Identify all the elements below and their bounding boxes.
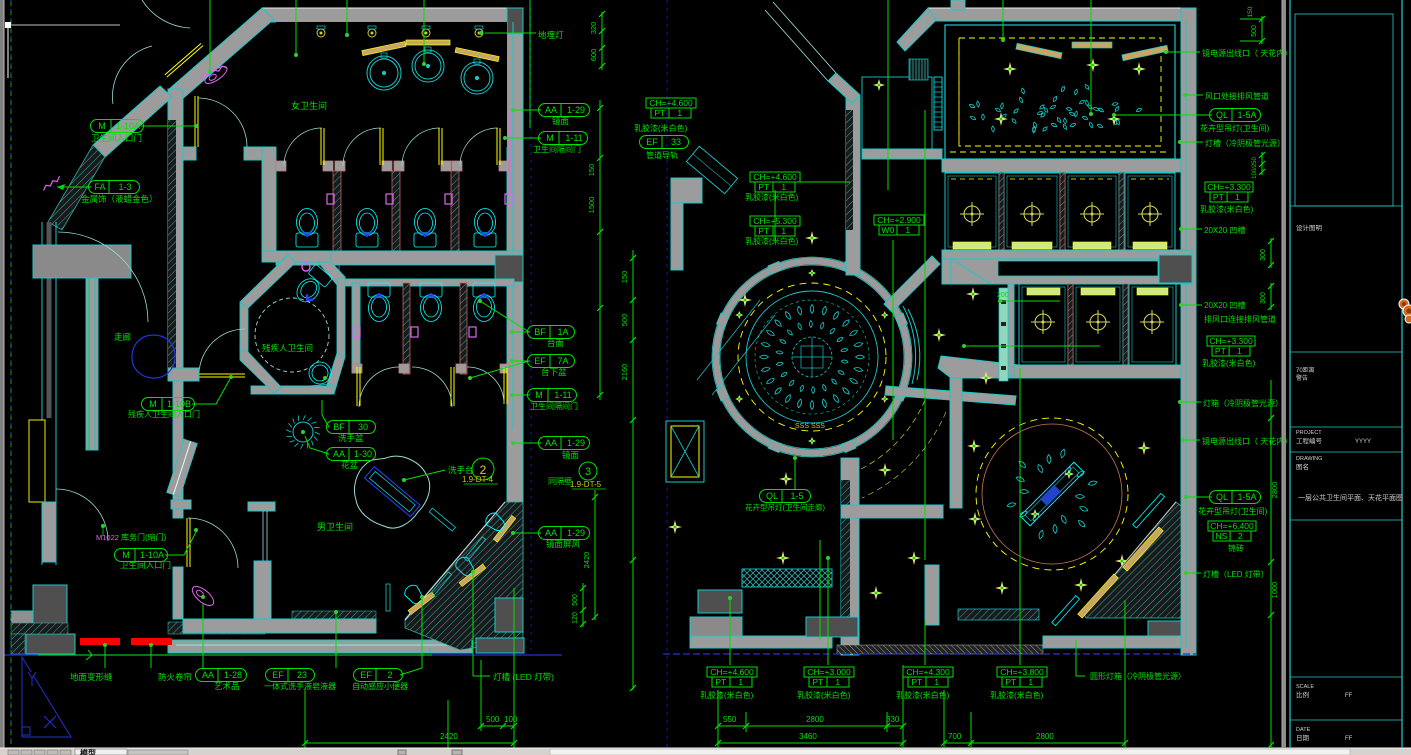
svg-text:EF: EF — [272, 670, 284, 680]
svg-text:3460: 3460 — [799, 732, 817, 741]
svg-text:500: 500 — [620, 314, 629, 327]
svg-text:一体式洗手液皂液器: 一体式洗手液皂液器 — [264, 681, 336, 691]
svg-text:PT: PT — [1215, 346, 1226, 356]
svg-text:30: 30 — [358, 422, 368, 432]
svg-text:库务门(暗门): 库务门(暗门) — [121, 532, 167, 542]
svg-text:1: 1 — [781, 226, 786, 236]
svg-text:330: 330 — [886, 715, 900, 724]
svg-text:1-28: 1-28 — [224, 670, 242, 680]
svg-text:2800: 2800 — [806, 715, 824, 724]
svg-text:排风口连接排风管道: 排风口连接排风管道 — [1204, 314, 1276, 324]
svg-text:300: 300 — [1260, 249, 1267, 261]
svg-text:100/250: 100/250 — [1252, 157, 1258, 179]
svg-text:FF: FF — [1345, 693, 1353, 699]
svg-text:SSS SSS: SSS SSS — [795, 423, 825, 430]
svg-text:1-10B: 1-10B — [167, 399, 191, 409]
svg-text:PT: PT — [812, 677, 823, 687]
svg-text:550: 550 — [723, 715, 737, 724]
svg-text:M: M — [149, 399, 157, 409]
svg-text:CH=+6.400: CH=+6.400 — [1210, 521, 1254, 531]
svg-text:CH=+4.600: CH=+4.600 — [710, 667, 754, 677]
svg-text:卫生间隔间门: 卫生间隔间门 — [533, 144, 581, 154]
svg-text:BF: BF — [534, 327, 546, 337]
svg-text:乳胶漆(米白色): 乳胶漆(米白色) — [797, 690, 851, 700]
svg-text:1: 1 — [738, 677, 743, 687]
svg-text:CH=+4.600: CH=+4.600 — [649, 98, 693, 108]
svg-text:金属饰（液蜡金色）: 金属饰（液蜡金色） — [81, 194, 158, 204]
svg-text:警告: 警告 — [1296, 374, 1308, 382]
svg-text:1: 1 — [905, 225, 910, 235]
svg-text:镜面: 镜面 — [552, 116, 570, 126]
svg-text:W0: W0 — [881, 225, 894, 235]
svg-text:艺术品: 艺术品 — [214, 681, 240, 691]
svg-text:自动感应小便器: 自动感应小便器 — [352, 681, 408, 691]
svg-text:乳胶漆(米白色): 乳胶漆(米白色) — [700, 690, 754, 700]
svg-text:乳胶漆(米白色): 乳胶漆(米白色) — [745, 236, 799, 246]
svg-text:一层公共卫生间平面、天花平面图: 一层公共卫生间平面、天花平面图 — [1298, 493, 1403, 502]
svg-text:QL: QL — [1216, 110, 1228, 120]
svg-text:锦砖: 锦砖 — [1228, 543, 1244, 553]
svg-text:1-3: 1-3 — [118, 182, 131, 192]
svg-text:QL: QL — [766, 491, 778, 501]
svg-text:FF: FF — [1345, 736, 1353, 742]
svg-text:M: M — [535, 390, 543, 400]
svg-text:M: M — [98, 121, 106, 131]
svg-text:150: 150 — [620, 271, 629, 284]
svg-text:AA: AA — [333, 449, 345, 459]
svg-text:PT: PT — [715, 677, 726, 687]
svg-text:洗手盆: 洗手盆 — [338, 433, 364, 443]
svg-text:花盆: 花盆 — [341, 460, 359, 470]
svg-text:卫生间隔间门: 卫生间隔间门 — [530, 401, 578, 411]
svg-text:EF: EF — [534, 356, 546, 366]
svg-text:1-11: 1-11 — [565, 133, 582, 143]
svg-text:PT: PT — [758, 182, 769, 192]
svg-text:2420: 2420 — [440, 732, 458, 741]
svg-text:70距离: 70距离 — [1296, 366, 1315, 374]
svg-text:CH=+4.300: CH=+4.300 — [906, 667, 950, 677]
svg-text:QL: QL — [1216, 492, 1228, 502]
svg-text:灯槽 (LED 灯带): 灯槽 (LED 灯带) — [493, 672, 554, 682]
svg-text:PT: PT — [1213, 192, 1224, 202]
svg-text:CH=+3.800: CH=+3.800 — [1000, 667, 1044, 677]
svg-text:2160: 2160 — [620, 364, 629, 381]
svg-text:PROJECT: PROJECT — [1296, 430, 1322, 436]
svg-text:CH=+3.300: CH=+3.300 — [1207, 182, 1251, 192]
svg-text:600: 600 — [589, 49, 598, 62]
svg-text:EF: EF — [360, 670, 372, 680]
svg-text:1: 1 — [1237, 346, 1242, 356]
svg-text:1-5A: 1-5A — [1237, 492, 1256, 502]
svg-text:1: 1 — [1235, 192, 1240, 202]
svg-text:花卉型吊灯(卫生间): 花卉型吊灯(卫生间) — [1198, 506, 1268, 516]
svg-text:3: 3 — [585, 466, 591, 478]
svg-text:200: 200 — [997, 292, 1009, 299]
svg-text:1.9-DT-4: 1.9-DT-4 — [462, 475, 494, 484]
svg-text:DRAWING: DRAWING — [1296, 456, 1322, 462]
svg-text:1A: 1A — [557, 327, 568, 337]
svg-text:33: 33 — [671, 137, 681, 147]
svg-text:1-5A: 1-5A — [1237, 110, 1256, 120]
svg-text:2: 2 — [387, 670, 392, 680]
svg-text:7A: 7A — [557, 356, 568, 366]
svg-text:AA: AA — [545, 528, 557, 538]
svg-text:灯槽（冷阴极管光源）: 灯槽（冷阴极管光源） — [1205, 138, 1285, 148]
svg-text:女卫生间: 女卫生间 — [291, 100, 327, 111]
svg-text:CH=+3.000: CH=+3.000 — [807, 667, 851, 677]
svg-text:2800: 2800 — [1036, 732, 1054, 741]
svg-text:镜电源出线口（ 天花内）: 镜电源出线口（ 天花内） — [1202, 436, 1292, 446]
svg-text:120: 120 — [572, 612, 579, 624]
svg-text:同隔壁: 同隔壁 — [548, 476, 572, 486]
svg-text:2420: 2420 — [582, 552, 591, 569]
svg-text:CH=+3.300: CH=+3.300 — [1209, 336, 1253, 346]
svg-text:灯槽（LED 灯带）: 灯槽（LED 灯带） — [1203, 569, 1269, 579]
svg-text:工程编号: 工程编号 — [1296, 436, 1323, 445]
svg-text:1-5: 1-5 — [790, 491, 803, 501]
svg-text:花卉型吊灯(卫生间走廊): 花卉型吊灯(卫生间走廊) — [745, 502, 825, 512]
svg-text:2800: 2800 — [1270, 482, 1279, 499]
svg-text:台面: 台面 — [547, 338, 565, 348]
svg-text:日期: 日期 — [1296, 734, 1310, 742]
svg-text:DATE: DATE — [1296, 727, 1311, 733]
svg-text:PT: PT — [758, 226, 769, 236]
svg-text:镜电源出线口（ 天花内）: 镜电源出线口（ 天花内） — [1202, 48, 1292, 58]
svg-text:设计图明: 设计图明 — [1296, 223, 1323, 232]
svg-text:300: 300 — [1260, 292, 1267, 304]
svg-text:图名: 图名 — [1296, 462, 1309, 471]
svg-text:FA: FA — [94, 182, 105, 192]
svg-text:1000: 1000 — [1270, 582, 1279, 599]
svg-text:100: 100 — [504, 715, 518, 724]
svg-text:1-29: 1-29 — [567, 105, 585, 115]
svg-text:150: 150 — [1247, 6, 1254, 17]
svg-text:M1022: M1022 — [96, 533, 119, 542]
svg-text:500: 500 — [572, 594, 579, 606]
svg-text:1: 1 — [934, 677, 939, 687]
svg-text:500: 500 — [1251, 25, 1258, 37]
svg-text:1-11: 1-11 — [554, 390, 571, 400]
svg-text:1-10A: 1-10A — [140, 550, 164, 560]
svg-text:PT: PT — [654, 108, 665, 118]
svg-text:走廊: 走廊 — [114, 332, 132, 342]
svg-text:1: 1 — [835, 677, 840, 687]
svg-text:M: M — [546, 133, 554, 143]
svg-text:防火卷帘: 防火卷帘 — [158, 672, 192, 682]
svg-text:洗手台: 洗手台 — [448, 465, 474, 475]
svg-text:比例: 比例 — [1296, 690, 1309, 699]
svg-text:地面变形缝: 地面变形缝 — [70, 672, 113, 682]
svg-text:乳胶漆(米白色): 乳胶漆(米白色) — [745, 192, 799, 202]
svg-text:1.9-DT-5: 1.9-DT-5 — [570, 480, 602, 489]
svg-text:1: 1 — [677, 108, 682, 118]
svg-text:地埋灯: 地埋灯 — [538, 30, 564, 40]
svg-text:AA: AA — [545, 438, 557, 448]
svg-text:1500: 1500 — [587, 197, 596, 214]
svg-text:镜面屏风: 镜面屏风 — [546, 539, 581, 549]
svg-text:1-30: 1-30 — [354, 449, 372, 459]
svg-text:卫生间入口门: 卫生间入口门 — [120, 560, 171, 570]
svg-text:YYYY: YYYY — [1355, 439, 1371, 445]
svg-text:CH=+4.600: CH=+4.600 — [753, 172, 797, 182]
svg-text:残疾人卫生间入口门: 残疾人卫生间入口门 — [128, 409, 200, 419]
svg-text:20X20 凹槽: 20X20 凹槽 — [1204, 225, 1245, 235]
svg-text:M: M — [122, 550, 130, 560]
svg-text:1: 1 — [1028, 677, 1033, 687]
svg-text:AA: AA — [202, 670, 214, 680]
svg-text:BF: BF — [333, 422, 345, 432]
svg-text:SCALE: SCALE — [1296, 684, 1314, 690]
svg-text:2: 2 — [1238, 531, 1243, 541]
svg-text:乳胶漆(米白色): 乳胶漆(米白色) — [634, 123, 688, 133]
svg-text:台下盆: 台下盆 — [541, 367, 567, 377]
svg-text:乳胶漆(米白色): 乳胶漆(米白色) — [1202, 358, 1256, 368]
svg-text:20X20 凹槽: 20X20 凹槽 — [1204, 300, 1245, 310]
svg-text:管道导轨: 管道导轨 — [646, 150, 678, 160]
svg-text:320: 320 — [589, 22, 598, 35]
svg-text:NS: NS — [1215, 531, 1227, 541]
svg-text:花卉型吊灯(卫生间): 花卉型吊灯(卫生间) — [1200, 123, 1270, 133]
svg-text:500: 500 — [486, 715, 500, 724]
svg-text:PT: PT — [911, 677, 922, 687]
svg-text:风口处接排风管道: 风口处接排风管道 — [1205, 91, 1269, 101]
svg-text:1-29: 1-29 — [567, 528, 585, 538]
svg-text:乳胶漆(米白色): 乳胶漆(米白色) — [896, 690, 950, 700]
svg-text:23: 23 — [297, 670, 307, 680]
svg-text:1-29: 1-29 — [567, 438, 585, 448]
svg-text:1: 1 — [781, 182, 786, 192]
svg-text:乳胶漆(米白色): 乳胶漆(米白色) — [990, 690, 1044, 700]
svg-text:圆形灯箱（冷阴极管光源）: 圆形灯箱（冷阴极管光源） — [1090, 671, 1186, 681]
svg-text:模型: 模型 — [80, 748, 96, 755]
svg-text:150: 150 — [587, 164, 596, 177]
svg-text:乳胶漆(米白色): 乳胶漆(米白色) — [1200, 204, 1254, 214]
svg-text:残疾人卫生间: 残疾人卫生间 — [262, 343, 313, 353]
svg-text:男卫生间: 男卫生间 — [317, 521, 353, 532]
svg-text:AA: AA — [545, 105, 557, 115]
svg-text:1-10A: 1-10A — [116, 121, 140, 131]
svg-text:PT: PT — [1005, 677, 1016, 687]
svg-text:700: 700 — [948, 732, 962, 741]
svg-text:CH=+2.900: CH=+2.900 — [877, 215, 921, 225]
svg-text:镜面: 镜面 — [562, 450, 580, 460]
svg-text:卫生间入口门: 卫生间入口门 — [91, 133, 142, 143]
svg-text:EF: EF — [646, 137, 658, 147]
